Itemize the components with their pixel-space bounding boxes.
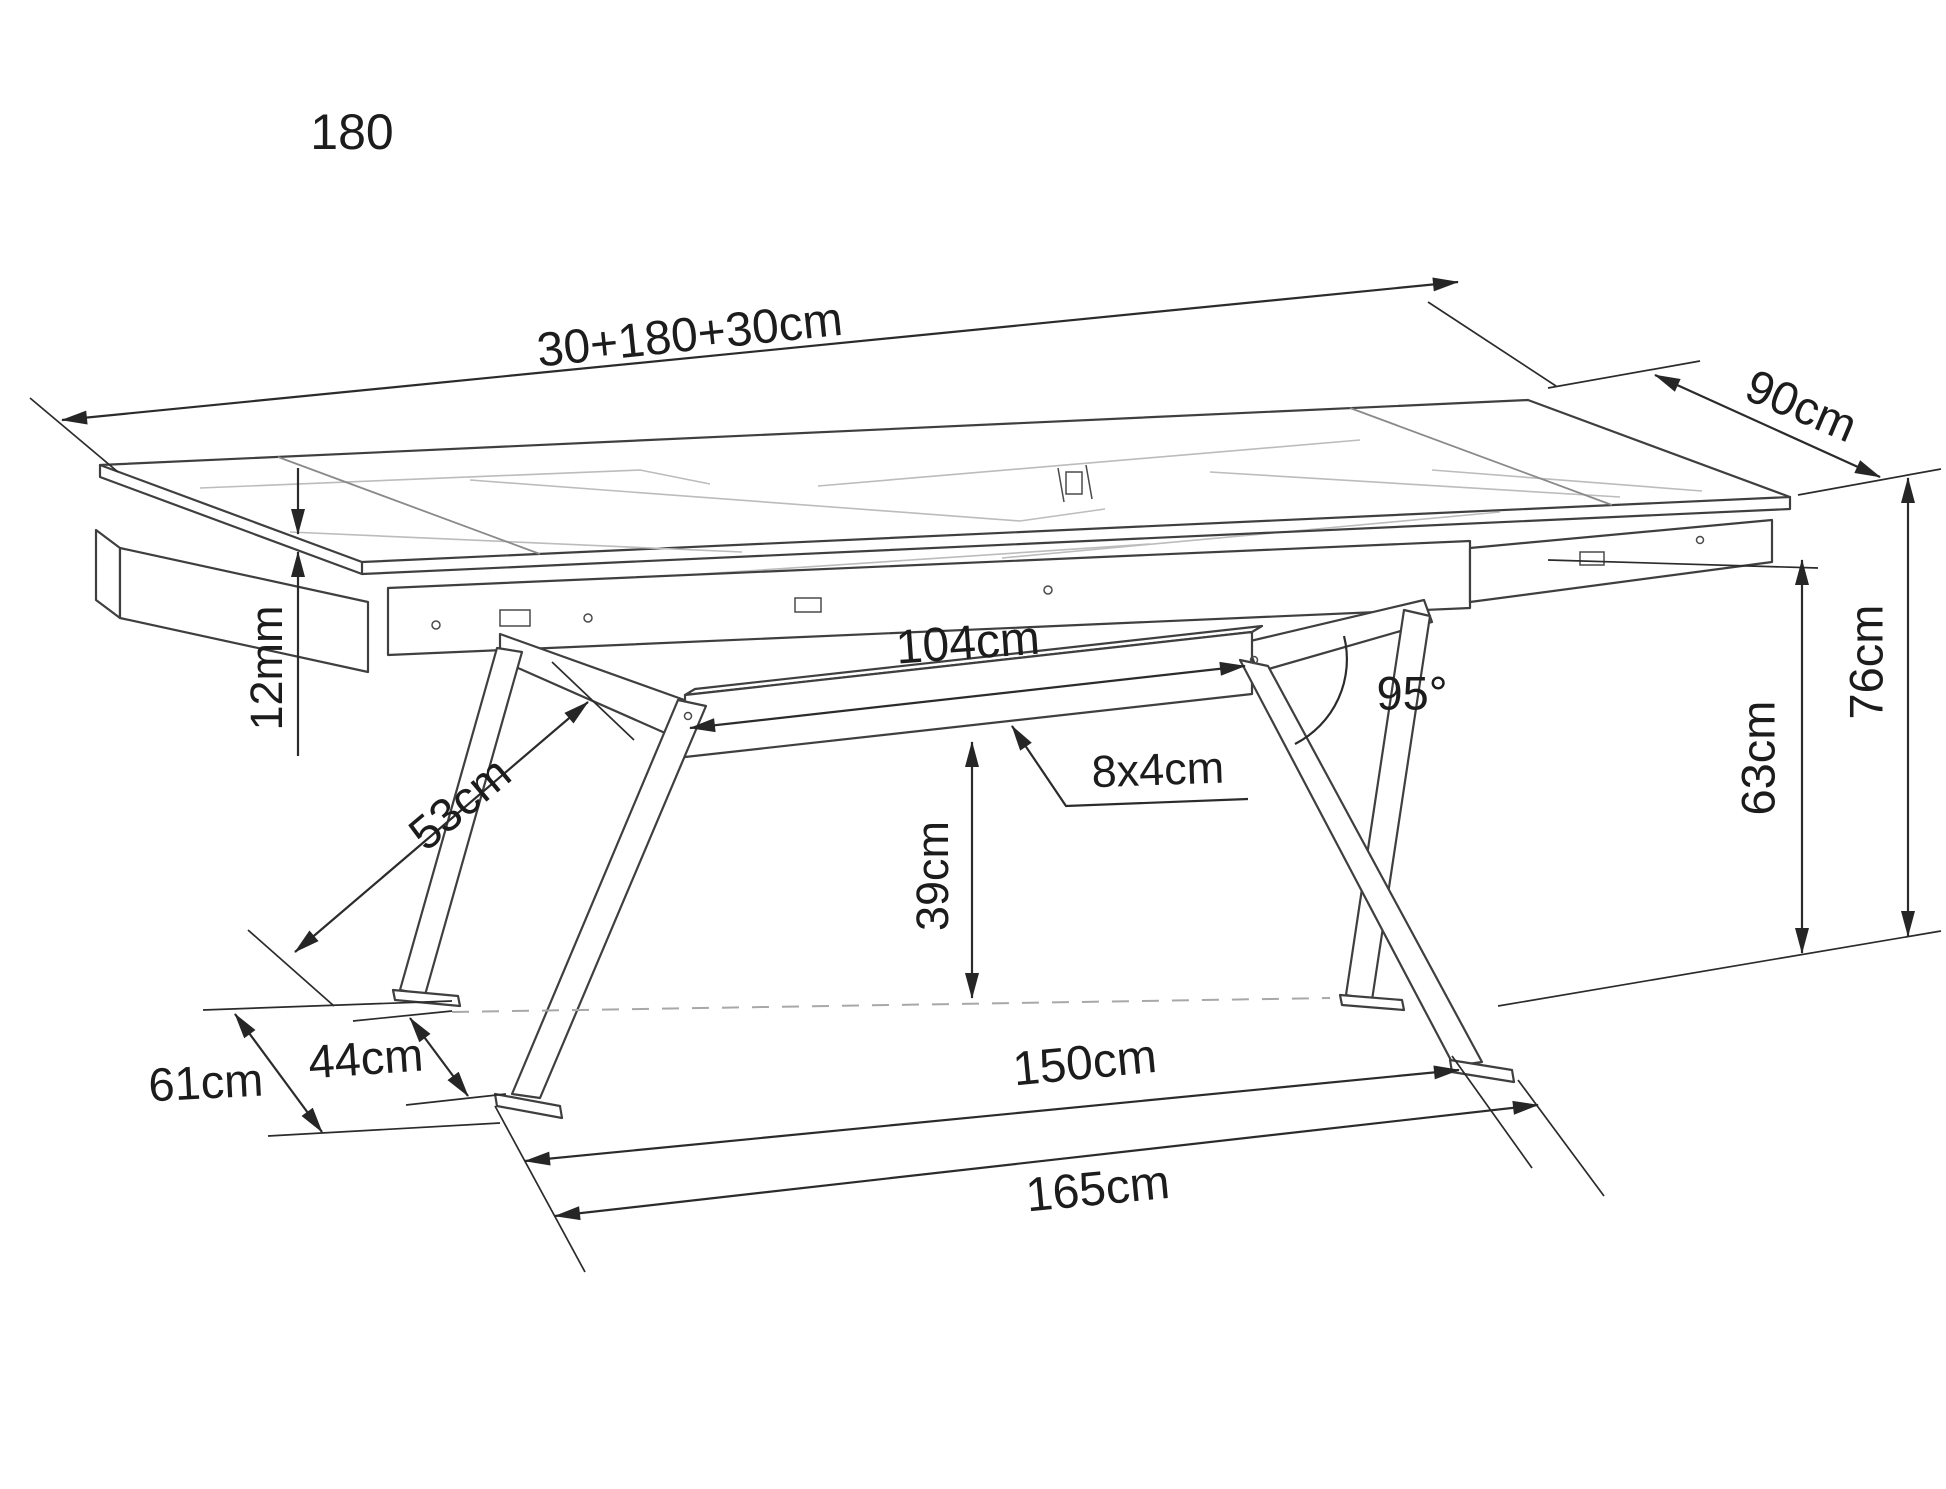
ext-line xyxy=(248,930,334,1006)
ext-line xyxy=(1428,302,1556,386)
ext-line xyxy=(268,1123,500,1136)
ext-line xyxy=(406,1094,506,1105)
right-leaf-rail xyxy=(1470,520,1772,602)
dim-label-apron-height: 63cm xyxy=(1731,701,1784,816)
front-left-leg xyxy=(512,700,706,1098)
dim-label-thickness: 12mm xyxy=(241,605,292,730)
dim-span-inner xyxy=(525,1070,1459,1161)
dim-label-beam-profile: 8x4cm xyxy=(1091,742,1225,798)
ext-line xyxy=(495,1106,585,1272)
ext-line xyxy=(1498,931,1941,1006)
ext-line xyxy=(1518,1080,1604,1196)
table-drawing xyxy=(96,400,1790,1118)
dim-label-span-inner: 150cm xyxy=(1010,1030,1158,1097)
dim-label-depth: 90cm xyxy=(1738,358,1865,452)
left-leaf-support-block xyxy=(96,530,368,672)
dim-label-total-height: 76cm xyxy=(1839,605,1892,720)
left-arm xyxy=(500,634,690,744)
ext-line xyxy=(30,398,118,472)
front-right-foot xyxy=(1450,1060,1514,1082)
size-label-180: 180 xyxy=(310,104,393,160)
dim-label-top-length: 30+180+30cm xyxy=(534,293,845,378)
dim-label-span-outer: 165cm xyxy=(1023,1156,1171,1223)
dim-label-beam-length: 104cm xyxy=(894,612,1041,675)
dim-label-beam-clearance: 39cm xyxy=(907,821,958,931)
front-left-foot xyxy=(495,1094,562,1118)
dim-label-leg-angle: 95° xyxy=(1376,666,1447,719)
technical-drawing-page: 180 30+180+30cm 90cm 12mm 53cm 104cm 8x4… xyxy=(0,0,1946,1489)
ext-line xyxy=(353,1011,452,1021)
dim-label-feet-gap: 44cm xyxy=(307,1027,425,1088)
technical-drawing-canvas: 180 30+180+30cm 90cm 12mm 53cm 104cm 8x4… xyxy=(0,0,1946,1489)
floor-dashed-line xyxy=(452,998,1330,1012)
ext-line xyxy=(203,1001,452,1010)
rear-right-foot xyxy=(1340,995,1404,1010)
dim-label-base-depth: 61cm xyxy=(147,1052,265,1111)
